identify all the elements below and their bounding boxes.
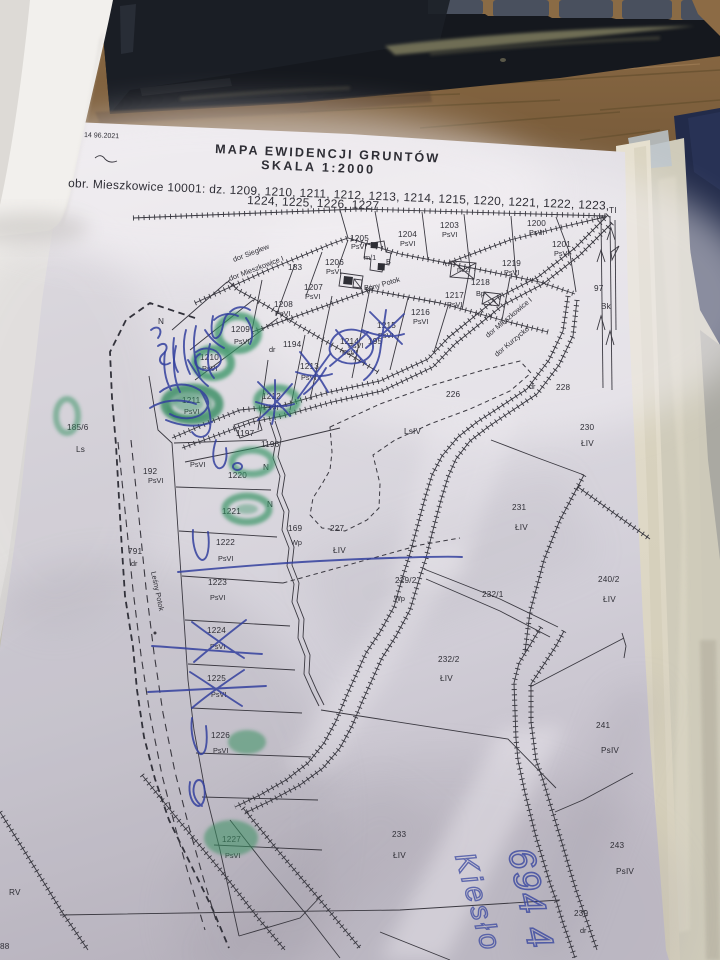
svg-text:dr: dr [580,926,587,935]
svg-text:1194: 1194 [283,340,302,349]
svg-text:1209: 1209 [231,325,250,334]
svg-text:1201: 1201 [552,240,571,249]
svg-text:239: 239 [574,909,589,918]
svg-text:PsVI: PsVI [190,460,205,469]
svg-text:dr: dr [269,345,276,354]
svg-text:232/1: 232/1 [482,590,504,599]
svg-text:m/2: m/2 [457,265,469,274]
svg-text:1204: 1204 [398,230,417,239]
svg-text:1197: 1197 [236,429,255,438]
svg-text:N: N [158,317,164,326]
svg-text:1206: 1206 [325,258,344,267]
svg-text:PsVI: PsVI [529,228,544,237]
svg-text:RV: RV [9,888,21,897]
svg-text:1208: 1208 [274,300,293,309]
svg-text:169: 169 [288,524,303,533]
svg-text:1219: 1219 [502,259,521,268]
svg-text:PsVI: PsVI [275,309,290,318]
svg-text:230: 230 [580,423,595,432]
svg-text:PsVI: PsVI [213,746,228,755]
svg-text:ŁIV: ŁIV [333,546,346,555]
svg-text:1203: 1203 [440,221,459,230]
svg-text:ŁIV: ŁIV [515,523,528,532]
svg-text:229/2: 229/2 [395,576,417,585]
svg-text:240/2: 240/2 [598,575,620,584]
svg-text:1223: 1223 [208,578,227,587]
svg-text:PsVI: PsVI [210,593,225,602]
svg-text:1217: 1217 [445,291,464,300]
svg-text:dr: dr [131,559,138,568]
svg-text:Bp: Bp [476,289,485,298]
svg-text:228: 228 [556,383,571,392]
svg-text:ŁIV: ŁIV [603,595,616,604]
svg-text:1207: 1207 [304,283,323,292]
svg-text:m/1: m/1 [364,253,376,262]
svg-text:1216: 1216 [411,308,430,317]
svg-text:LsIV: LsIV [404,427,422,436]
svg-text:dr: dr [529,382,536,391]
svg-text:PsVI: PsVI [504,268,519,277]
svg-text:PsIV: PsIV [616,867,634,876]
svg-text:PsVI: PsVI [400,239,415,248]
svg-text:1196: 1196 [261,440,280,449]
svg-text:226: 226 [446,390,461,399]
svg-text:241: 241 [596,721,611,730]
svg-text:1200: 1200 [527,219,546,228]
svg-text:Wp: Wp [291,538,302,547]
svg-text:192: 192 [143,467,158,476]
svg-text:1226: 1226 [211,731,230,740]
svg-text:PsVI: PsVI [442,230,457,239]
svg-text:ŁIV: ŁIV [393,851,406,860]
svg-text:PsVI: PsVI [447,300,462,309]
svg-text:1222: 1222 [216,538,235,547]
svg-text:14 96.2021: 14 96.2021 [84,132,119,140]
svg-text:Ls: Ls [76,445,85,454]
svg-text:183: 183 [288,263,303,272]
svg-text:Bk: Bk [601,302,612,311]
svg-text:1224: 1224 [207,626,226,635]
svg-text:PsVI: PsVI [351,242,366,251]
svg-text:PsVI: PsVI [413,317,428,326]
svg-text:PsVI: PsVI [326,267,341,276]
svg-text:PsVI: PsVI [148,476,163,485]
svg-text:TI: TI [609,206,617,215]
svg-text:Wp: Wp [394,594,405,603]
svg-text:243: 243 [610,841,625,850]
svg-text:97: 97 [594,284,604,293]
svg-text:233: 233 [392,830,407,839]
svg-text:227: 227 [330,524,345,533]
svg-text:231: 231 [512,503,527,512]
svg-text:B: B [386,257,391,266]
svg-text:1218: 1218 [471,278,490,287]
svg-text:ŁIV: ŁIV [440,674,453,683]
svg-text:PsVI: PsVI [554,249,569,258]
svg-text:791: 791 [128,547,143,556]
svg-text:232/2: 232/2 [438,655,460,664]
svg-text:1225: 1225 [207,674,226,683]
svg-text:PsVI: PsVI [218,554,233,563]
svg-text:PsIV: PsIV [601,746,619,755]
svg-text:88: 88 [0,942,10,951]
svg-text:ŁIV: ŁIV [581,439,594,448]
svg-text:PsVI: PsVI [305,292,320,301]
